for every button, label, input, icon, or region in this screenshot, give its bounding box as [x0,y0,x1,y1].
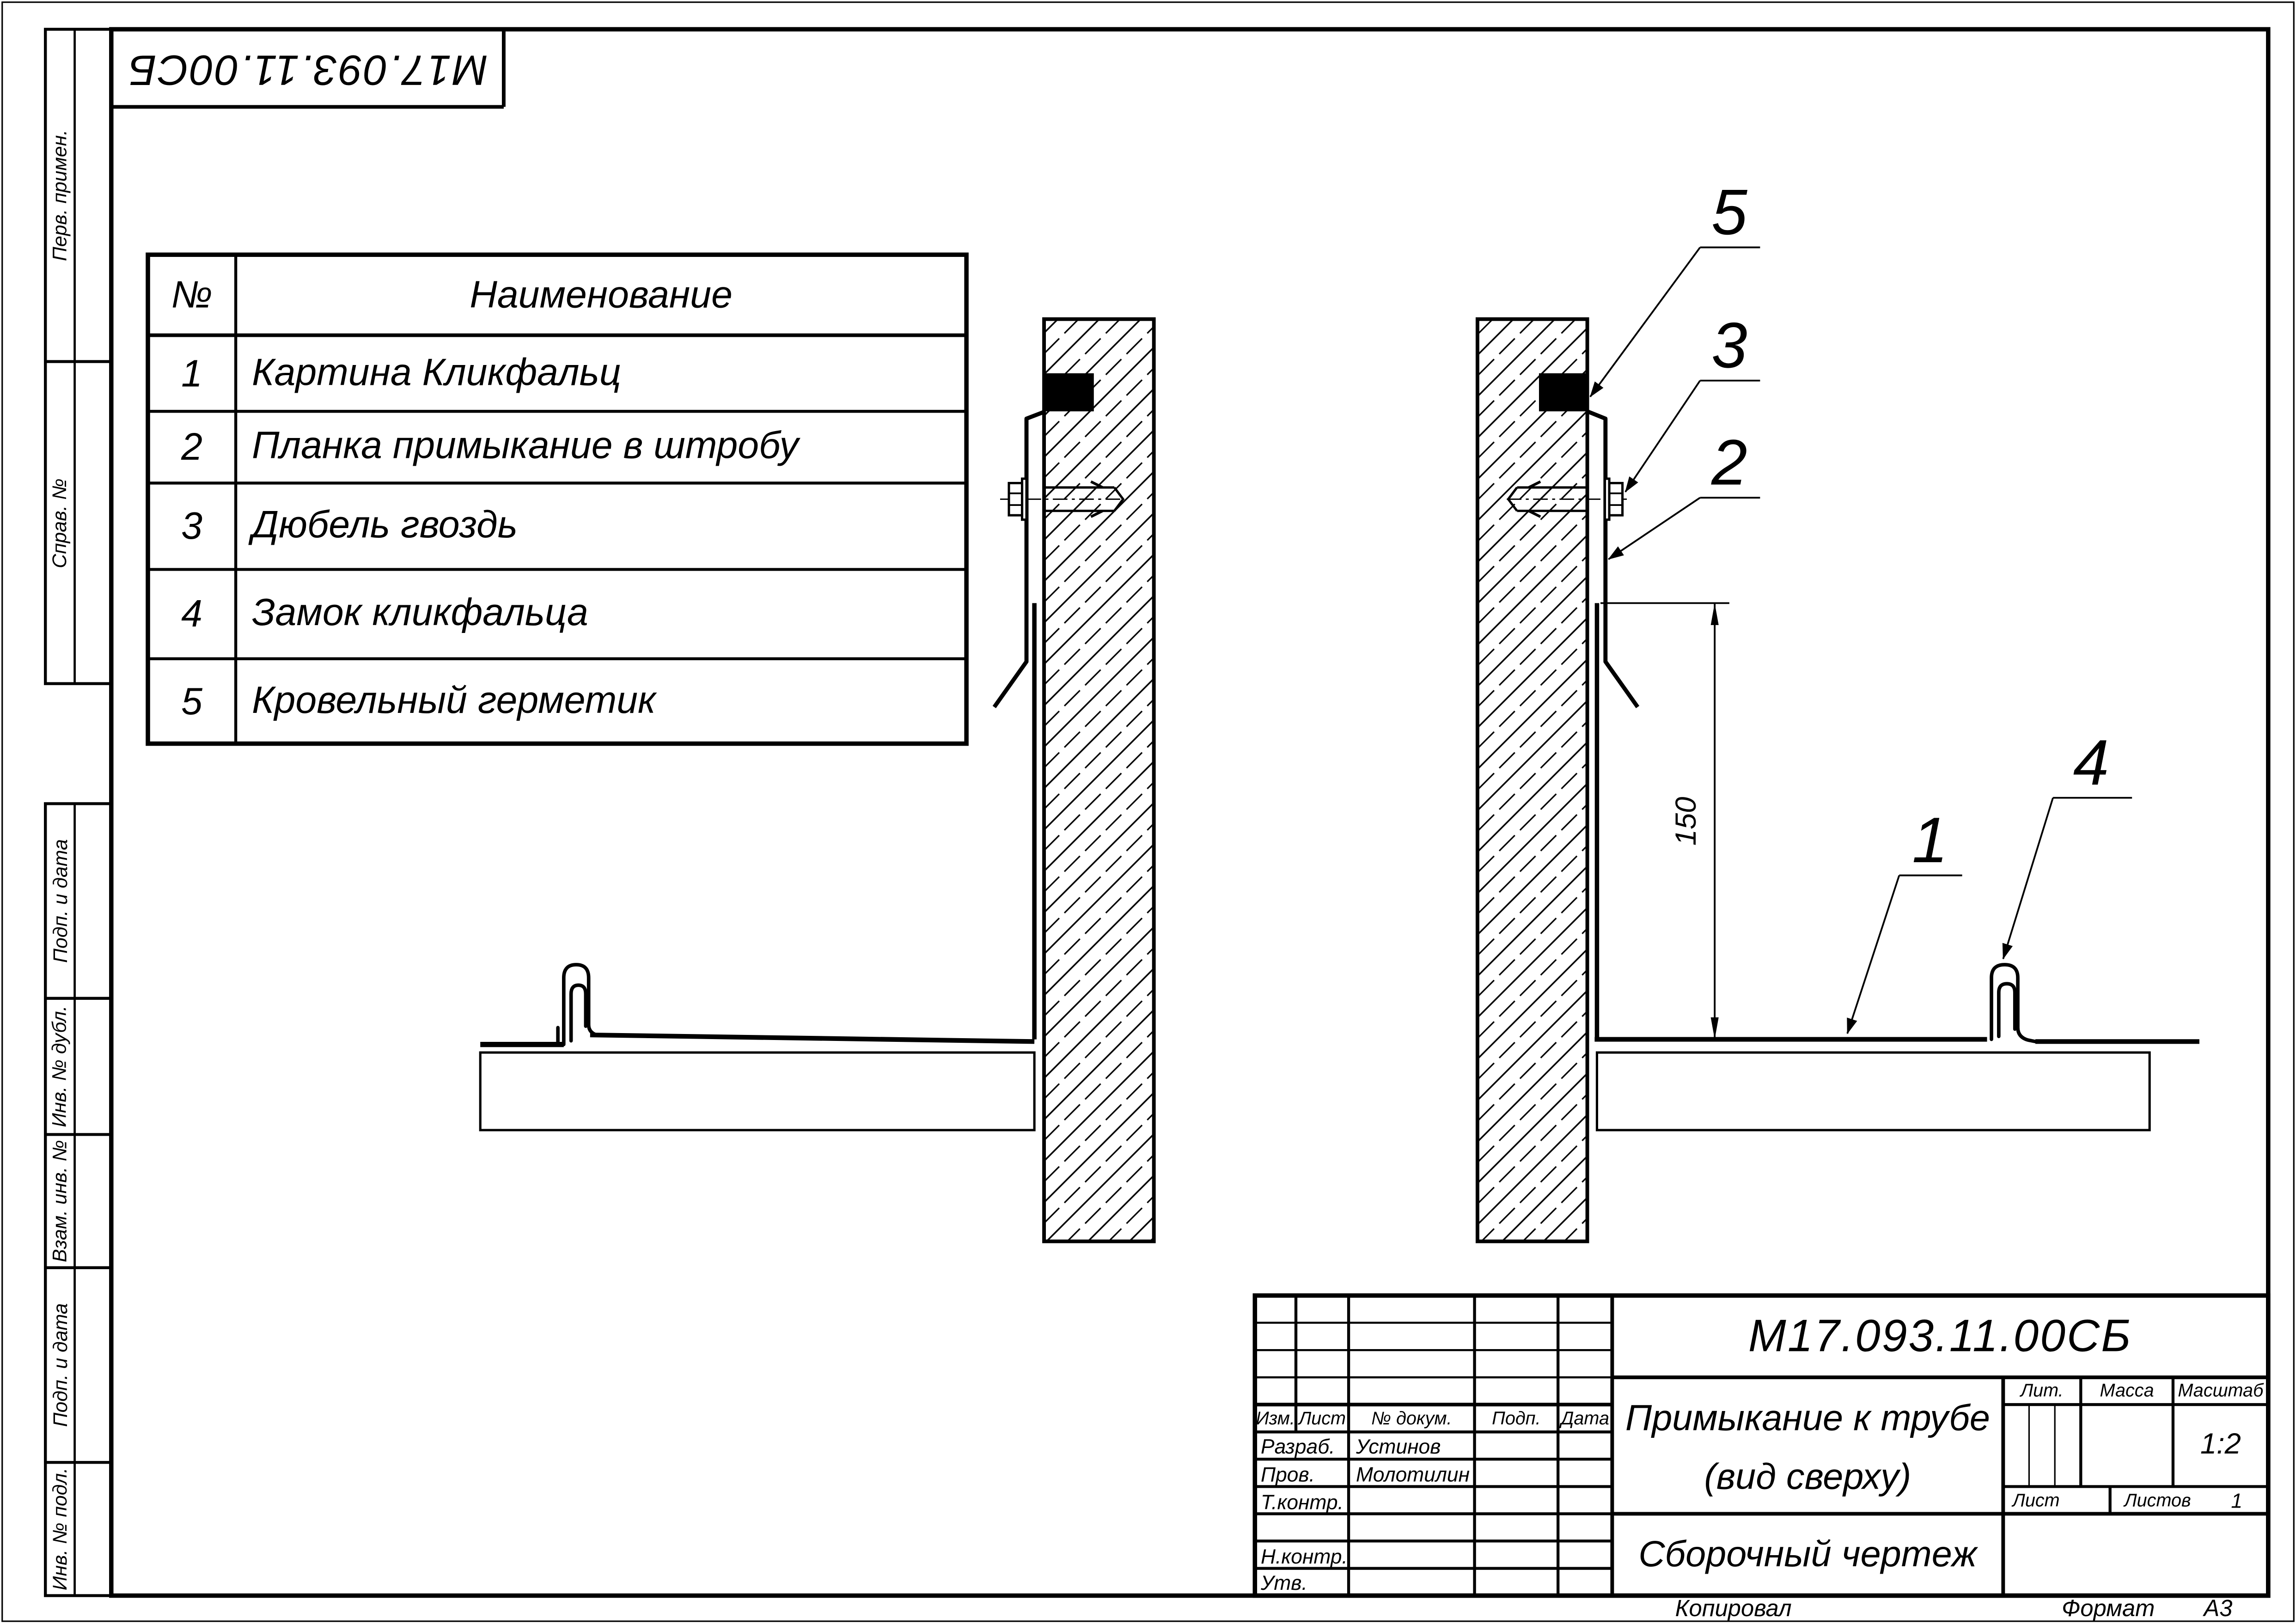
leader-3 [1625,381,1700,492]
margin-label-vzam-inv-n: Взам. инв. № [45,1135,74,1268]
margin-label-podp-i-data-1: Подп. и дата [45,803,74,998]
seam-right [1991,965,2035,1041]
drawing-sheet: 150 5 3 2 1 4 [0,0,2296,1624]
callout-leaders [1590,247,2132,1033]
tb-label-list2: Лист [2003,1487,2069,1514]
stamp-doc-number: М17.093.11.00СБ [111,29,504,107]
dimension-150-text: 150 [1670,797,1702,846]
leader-4 [2003,798,2053,959]
sealant-right [1539,373,1588,411]
margin-label-sprav-n: Справ. № [45,362,74,684]
tb-value-razrab: Устинов [1356,1435,1441,1458]
tb-label-utv: Утв. [1261,1571,1307,1594]
tb-label-t-kontr: Т.контр. [1261,1490,1343,1514]
parts-row-4-name: Замок кликфальца [252,590,588,635]
footer-kopiroval: Копировал [1675,1597,1792,1624]
pipe-right-wall [1478,319,1588,1241]
tb-label-massa: Масса [2081,1377,2173,1405]
leader-1 [1847,876,1899,1034]
footer-format-label: Формат [2062,1597,2155,1624]
leader-5 [1590,247,1700,396]
pipe-left-wall [1044,319,1154,1241]
tb-label-podp: Подп. [1475,1405,1558,1432]
callout-1-text: 1 [1912,804,1948,876]
seam-left [558,965,598,1045]
margin-label-perv-primen: Перв. примен. [45,29,74,361]
parts-row-5-num: 5 [148,659,236,744]
deck-right [1597,1052,2149,1130]
tb-label-list: Лист [1296,1405,1349,1432]
callout-5-text: 5 [1711,176,1747,248]
tb-label-masshtab: Масштаб [2173,1377,2268,1405]
callout-2-text: 2 [1711,426,1747,499]
tb-label-listov: Листов [2110,1487,2205,1514]
panel-left [590,1035,1034,1041]
tb-label-razrab: Разраб. [1261,1435,1335,1458]
drawing-canvas: 150 5 3 2 1 4 [0,0,2296,1624]
tb-value-scale: 1:2 [2173,1405,2268,1486]
parts-row-4-num: 4 [148,570,236,659]
sealant-left [1045,373,1094,411]
margin-label-podp-i-data-2: Подп. и дата [45,1268,74,1462]
flashing-left [994,411,1045,707]
tb-label-prov: Пров. [1261,1462,1315,1486]
title-doc-type: Сборочный чертеж [1612,1514,2003,1595]
title-name-line2: (вид сверху) [1612,1446,2003,1508]
callout-numbers: 5 3 2 1 4 [1711,176,2109,876]
dimension-150: 150 [1600,603,1729,1039]
tb-label-izm: Изм. [1255,1405,1296,1432]
footer-format-value: А3 [2204,1597,2232,1624]
callout-3-text: 3 [1711,309,1747,381]
parts-table-header-num: № [148,255,236,335]
tb-label-n-kontr: Н.контр. [1261,1545,1348,1568]
title-name-line1: Примыкание к трубе [1612,1388,2003,1449]
parts-row-5-name: Кровельный герметик [252,678,656,723]
margin-label-inv-n-podl: Инв. № подл. [45,1462,74,1595]
parts-row-3-name: Дюбель гвоздь [252,502,518,547]
parts-row-1-name: Картина Кликфальц [252,350,621,395]
parts-row-3-num: 3 [148,483,236,570]
parts-row-2-num: 2 [148,411,236,483]
stamp-doc-number-text: М17.093.11.00СБ [127,44,488,92]
margin-label-inv-n-dubl: Инв. № дубл. [45,998,74,1135]
title-doc-number: М17.093.11.00СБ [1612,1296,2268,1377]
tb-value-listov-count: 1 [2211,1487,2262,1514]
tb-value-prov: Молотилин [1356,1462,1470,1486]
parts-table-header-name: Наименование [236,255,966,335]
parts-row-2-name: Планка примыкание в штробу [252,423,799,468]
deck-left [480,1052,1034,1130]
tb-label-data: Дата [1558,1405,1612,1432]
tb-label-n-dokum: № докум. [1349,1405,1474,1432]
parts-row-1-num: 1 [148,335,236,412]
callout-4-text: 4 [2073,726,2109,798]
tb-label-lit: Лит. [2003,1377,2081,1405]
